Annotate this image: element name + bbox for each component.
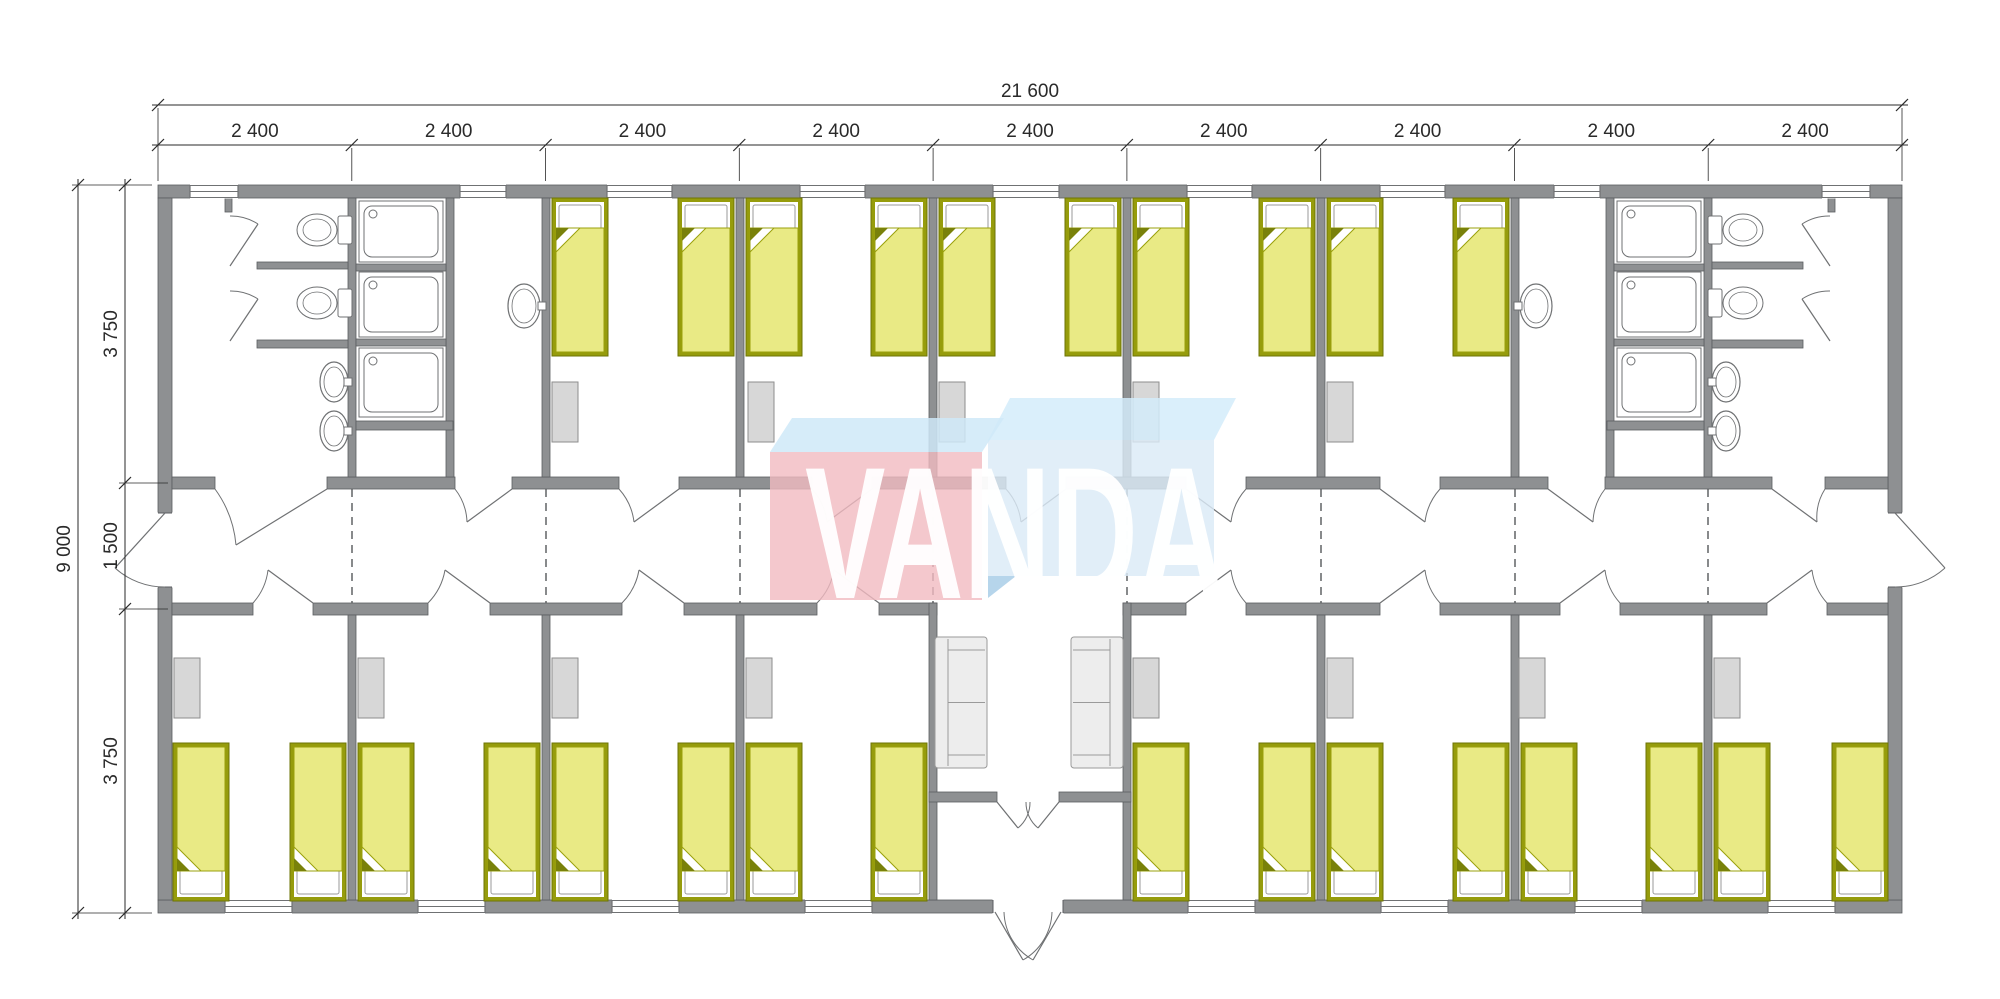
wall	[356, 421, 453, 430]
logo-text: VANDA	[805, 428, 1225, 638]
shower	[359, 272, 443, 337]
pillow	[1072, 205, 1114, 231]
blanket	[362, 747, 410, 871]
wall	[1511, 615, 1519, 900]
blanket	[875, 228, 923, 352]
pillow	[685, 868, 727, 894]
pillow	[1334, 868, 1376, 894]
wall	[684, 603, 817, 615]
blanket	[682, 228, 730, 352]
pillow	[1266, 205, 1308, 231]
sink-tap-icon	[344, 427, 352, 435]
pillow	[559, 868, 601, 894]
pillow	[946, 205, 988, 231]
door	[997, 802, 1030, 828]
wall	[1511, 198, 1519, 477]
pillow	[1266, 868, 1308, 894]
wall	[1246, 477, 1380, 489]
blanket	[1525, 747, 1573, 871]
bed	[678, 198, 734, 356]
window	[460, 185, 506, 199]
sofa	[1071, 637, 1123, 768]
wall	[1059, 792, 1131, 802]
pillow	[1528, 868, 1570, 894]
pillow	[1140, 868, 1182, 894]
locker	[1133, 658, 1159, 718]
wall	[327, 477, 455, 489]
blanket	[875, 747, 923, 871]
toilet	[1708, 214, 1763, 246]
wall	[172, 603, 253, 615]
wall	[1620, 603, 1767, 615]
shower	[359, 201, 443, 262]
sink-tap-icon	[1708, 378, 1716, 386]
pillow	[297, 868, 339, 894]
wall	[356, 339, 446, 346]
dimension-label: 2 400	[1588, 121, 1636, 142]
door	[1772, 489, 1825, 522]
wall	[1704, 615, 1712, 900]
window	[1187, 185, 1252, 199]
dimension-label: 9 000	[54, 525, 75, 573]
wall	[348, 615, 356, 900]
door	[1802, 216, 1830, 266]
dimension-label: 2 400	[1200, 121, 1248, 142]
pillow	[878, 868, 920, 894]
dimension-label: 3 750	[101, 310, 122, 358]
blanket	[682, 747, 730, 871]
blanket	[1331, 228, 1379, 352]
shower	[359, 348, 443, 417]
pillow	[1721, 868, 1763, 894]
wall	[1440, 477, 1548, 489]
wall	[225, 198, 232, 212]
toilet	[297, 214, 352, 246]
door	[1560, 570, 1620, 603]
locker	[1519, 658, 1545, 718]
window	[805, 900, 872, 914]
blanket	[1263, 228, 1311, 352]
bed	[358, 743, 414, 901]
window	[1381, 900, 1448, 914]
bed	[552, 198, 608, 356]
door-gap	[1888, 513, 1903, 588]
window	[1822, 185, 1870, 199]
shower	[1617, 348, 1701, 417]
window	[1554, 185, 1600, 199]
window	[993, 185, 1059, 199]
locker	[174, 658, 200, 718]
window	[800, 185, 865, 199]
blanket	[1069, 228, 1117, 352]
wall	[1606, 198, 1614, 477]
pillow	[878, 205, 920, 231]
door	[1380, 489, 1440, 522]
wall	[313, 603, 428, 615]
blanket	[1836, 747, 1884, 871]
wall	[257, 262, 348, 269]
door	[230, 291, 258, 341]
blanket	[1331, 747, 1379, 871]
blanket	[294, 747, 342, 871]
bed	[746, 743, 802, 901]
door	[1802, 291, 1830, 341]
locker	[358, 658, 384, 718]
toilet	[297, 287, 352, 319]
bed	[1453, 743, 1509, 901]
window	[1380, 185, 1445, 199]
wall	[257, 340, 348, 348]
sink-tap-icon	[538, 302, 546, 310]
blanket	[1263, 747, 1311, 871]
window	[612, 900, 679, 914]
shower	[1617, 272, 1701, 337]
locker	[748, 382, 774, 442]
wall	[172, 477, 215, 489]
door	[1767, 570, 1827, 603]
sink-tap-icon	[1514, 302, 1522, 310]
blanket	[1650, 747, 1698, 871]
wall	[929, 792, 997, 802]
locker	[552, 382, 578, 442]
bed	[1832, 743, 1888, 901]
locker	[552, 658, 578, 718]
blanket	[750, 747, 798, 871]
locker	[1327, 658, 1353, 718]
wall	[490, 603, 622, 615]
window	[1575, 900, 1642, 914]
bed	[290, 743, 346, 901]
dimension-label: 2 400	[231, 121, 279, 142]
dimension-label: 2 400	[1394, 121, 1442, 142]
pillow	[1839, 868, 1881, 894]
locker	[1714, 658, 1740, 718]
bed	[1133, 198, 1189, 356]
wall	[1440, 603, 1560, 615]
bed	[1714, 743, 1770, 901]
blanket	[488, 747, 536, 871]
wall	[1614, 339, 1704, 346]
sink	[320, 362, 352, 402]
wall	[1246, 603, 1380, 615]
bed	[939, 198, 995, 356]
floor-plan: VANDA21 6002 4002 4002 4002 4002 4002 40…	[0, 0, 2000, 999]
dimension-label: 2 400	[619, 121, 667, 142]
dimension-label: 2 400	[1781, 121, 1829, 142]
locker	[1327, 382, 1353, 442]
sink	[1708, 411, 1740, 451]
door	[622, 570, 684, 603]
dimension-label: 21 600	[1001, 81, 1059, 102]
sink	[320, 411, 352, 451]
pillow	[180, 868, 222, 894]
wall	[1712, 262, 1803, 269]
door	[230, 216, 258, 266]
vanda-logo: VANDA	[770, 398, 1236, 638]
blanket	[1718, 747, 1766, 871]
door-gap	[158, 513, 173, 588]
dimension-label: 2 400	[812, 121, 860, 142]
bed	[871, 743, 927, 901]
wall	[1123, 603, 1131, 900]
floor-plan-canvas: VANDA21 6002 4002 4002 4002 4002 4002 40…	[0, 0, 2000, 999]
sink	[1708, 362, 1740, 402]
window	[190, 185, 238, 199]
wall	[736, 198, 744, 477]
bed	[1521, 743, 1577, 901]
bed	[871, 198, 927, 356]
pillow	[685, 205, 727, 231]
sink-tap-icon	[1708, 427, 1716, 435]
blanket	[556, 228, 604, 352]
door-gap	[993, 900, 1064, 914]
pillow	[1140, 205, 1182, 231]
bed	[1453, 198, 1509, 356]
blanket	[556, 747, 604, 871]
door	[1548, 489, 1605, 522]
bed	[746, 198, 802, 356]
sink	[1514, 284, 1552, 328]
blanket	[750, 228, 798, 352]
pillow	[1334, 205, 1376, 231]
blanket	[1457, 747, 1505, 871]
wall	[446, 198, 454, 477]
blanket	[1457, 228, 1505, 352]
wall	[1317, 615, 1325, 900]
bed	[1133, 743, 1189, 901]
pillow	[1460, 868, 1502, 894]
pillow	[559, 205, 601, 231]
dimension-label: 1 500	[101, 522, 122, 570]
sink-tap-icon	[344, 378, 352, 386]
door	[215, 489, 327, 545]
bed	[1327, 743, 1383, 901]
blanket	[1137, 747, 1185, 871]
pillow	[365, 868, 407, 894]
door	[428, 570, 490, 603]
wall	[1825, 477, 1888, 489]
pillow	[753, 868, 795, 894]
window	[225, 900, 292, 914]
wall	[1607, 421, 1704, 430]
wall	[542, 198, 550, 477]
door	[455, 489, 512, 522]
blanket	[943, 228, 991, 352]
window	[418, 900, 485, 914]
wall	[1614, 264, 1704, 271]
bed	[1259, 743, 1315, 901]
wall	[542, 615, 550, 900]
bed	[173, 743, 229, 901]
wall	[736, 615, 744, 900]
bed	[1065, 198, 1121, 356]
blanket	[177, 747, 225, 871]
pillow	[753, 205, 795, 231]
door	[1026, 802, 1059, 828]
wall	[1317, 198, 1325, 477]
door	[253, 570, 313, 603]
wall	[356, 264, 446, 271]
dimension-label: 3 750	[101, 737, 122, 785]
bed	[678, 743, 734, 901]
bed	[552, 743, 608, 901]
bed	[1259, 198, 1315, 356]
window	[607, 185, 672, 199]
wall	[1828, 198, 1835, 212]
window	[1768, 900, 1835, 914]
toilet	[1708, 287, 1763, 319]
dimension-label: 2 400	[425, 121, 473, 142]
wall	[1827, 603, 1888, 615]
pillow	[491, 868, 533, 894]
locker	[746, 658, 772, 718]
bed	[1327, 198, 1383, 356]
sofa	[935, 637, 987, 768]
dimension-label: 2 400	[1006, 121, 1054, 142]
blanket	[1137, 228, 1185, 352]
wall	[512, 477, 619, 489]
door	[619, 489, 679, 522]
bed	[484, 743, 540, 901]
wall	[1712, 340, 1803, 348]
pillow	[1653, 868, 1695, 894]
sink	[508, 284, 546, 328]
shower	[1617, 201, 1701, 262]
wall	[1605, 477, 1772, 489]
window	[1188, 900, 1255, 914]
bed	[1646, 743, 1702, 901]
pillow	[1460, 205, 1502, 231]
door	[1380, 570, 1440, 603]
